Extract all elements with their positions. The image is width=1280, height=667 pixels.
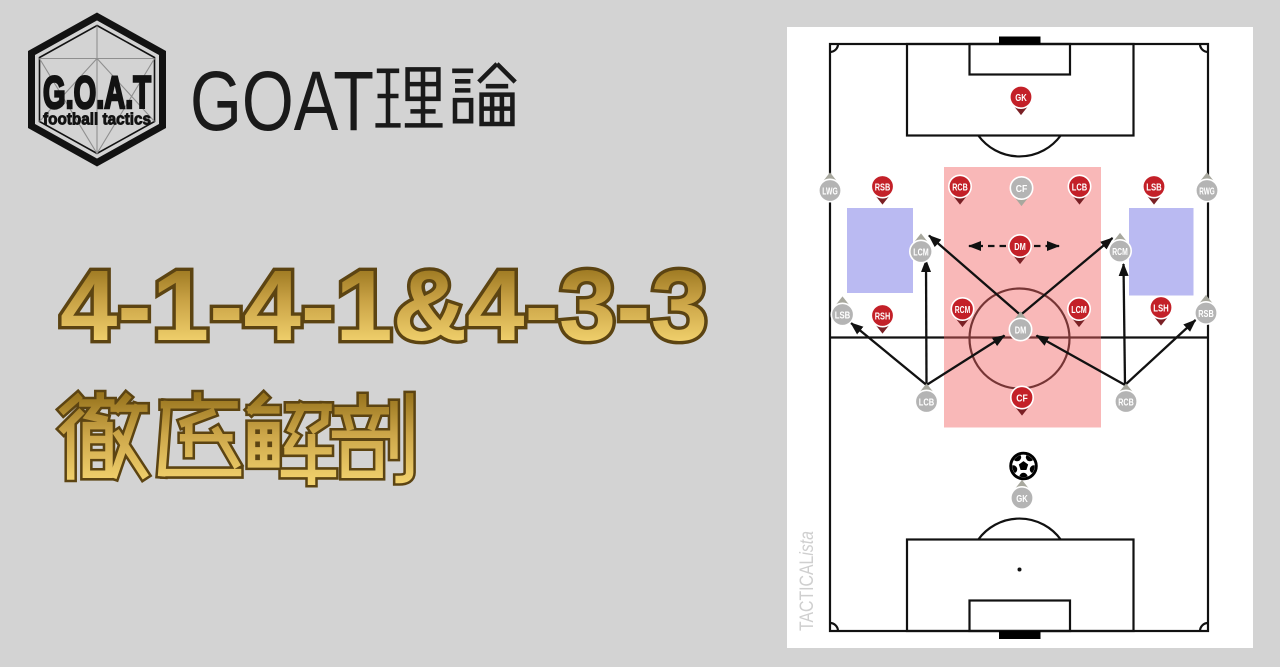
svg-text:LSH: LSH	[1153, 302, 1169, 314]
svg-text:LCB: LCB	[919, 396, 935, 408]
svg-text:RWG: RWG	[1199, 185, 1215, 197]
svg-text:RCB: RCB	[1118, 396, 1134, 408]
svg-text:LSB: LSB	[1146, 181, 1162, 193]
svg-text:GK: GK	[1016, 493, 1028, 505]
svg-text:DM: DM	[1014, 241, 1026, 253]
svg-text:DM: DM	[1015, 324, 1027, 336]
svg-text:RSH: RSH	[875, 310, 891, 322]
svg-text:RSB: RSB	[1198, 308, 1214, 320]
svg-text:RCM: RCM	[1112, 246, 1128, 258]
svg-text:LCM: LCM	[913, 246, 929, 258]
svg-text:RCB: RCB	[952, 181, 968, 193]
svg-text:TACTICALista: TACTICALista	[796, 531, 818, 631]
svg-text:football tactics: football tactics	[43, 110, 151, 129]
svg-text:CF: CF	[1016, 183, 1028, 195]
svg-text:LCM: LCM	[1071, 304, 1087, 316]
svg-text:4-1-4-1&4-3-3: 4-1-4-1&4-3-3	[60, 250, 708, 362]
svg-text:GOAT: GOAT	[190, 54, 374, 148]
svg-text:CF: CF	[1016, 392, 1028, 404]
svg-text:LCB: LCB	[1072, 181, 1088, 193]
svg-text:RCM: RCM	[955, 304, 971, 316]
svg-text:LWG: LWG	[822, 185, 838, 197]
svg-text:LSB: LSB	[835, 309, 851, 321]
svg-text:GK: GK	[1015, 92, 1027, 104]
svg-text:RSB: RSB	[875, 181, 891, 193]
